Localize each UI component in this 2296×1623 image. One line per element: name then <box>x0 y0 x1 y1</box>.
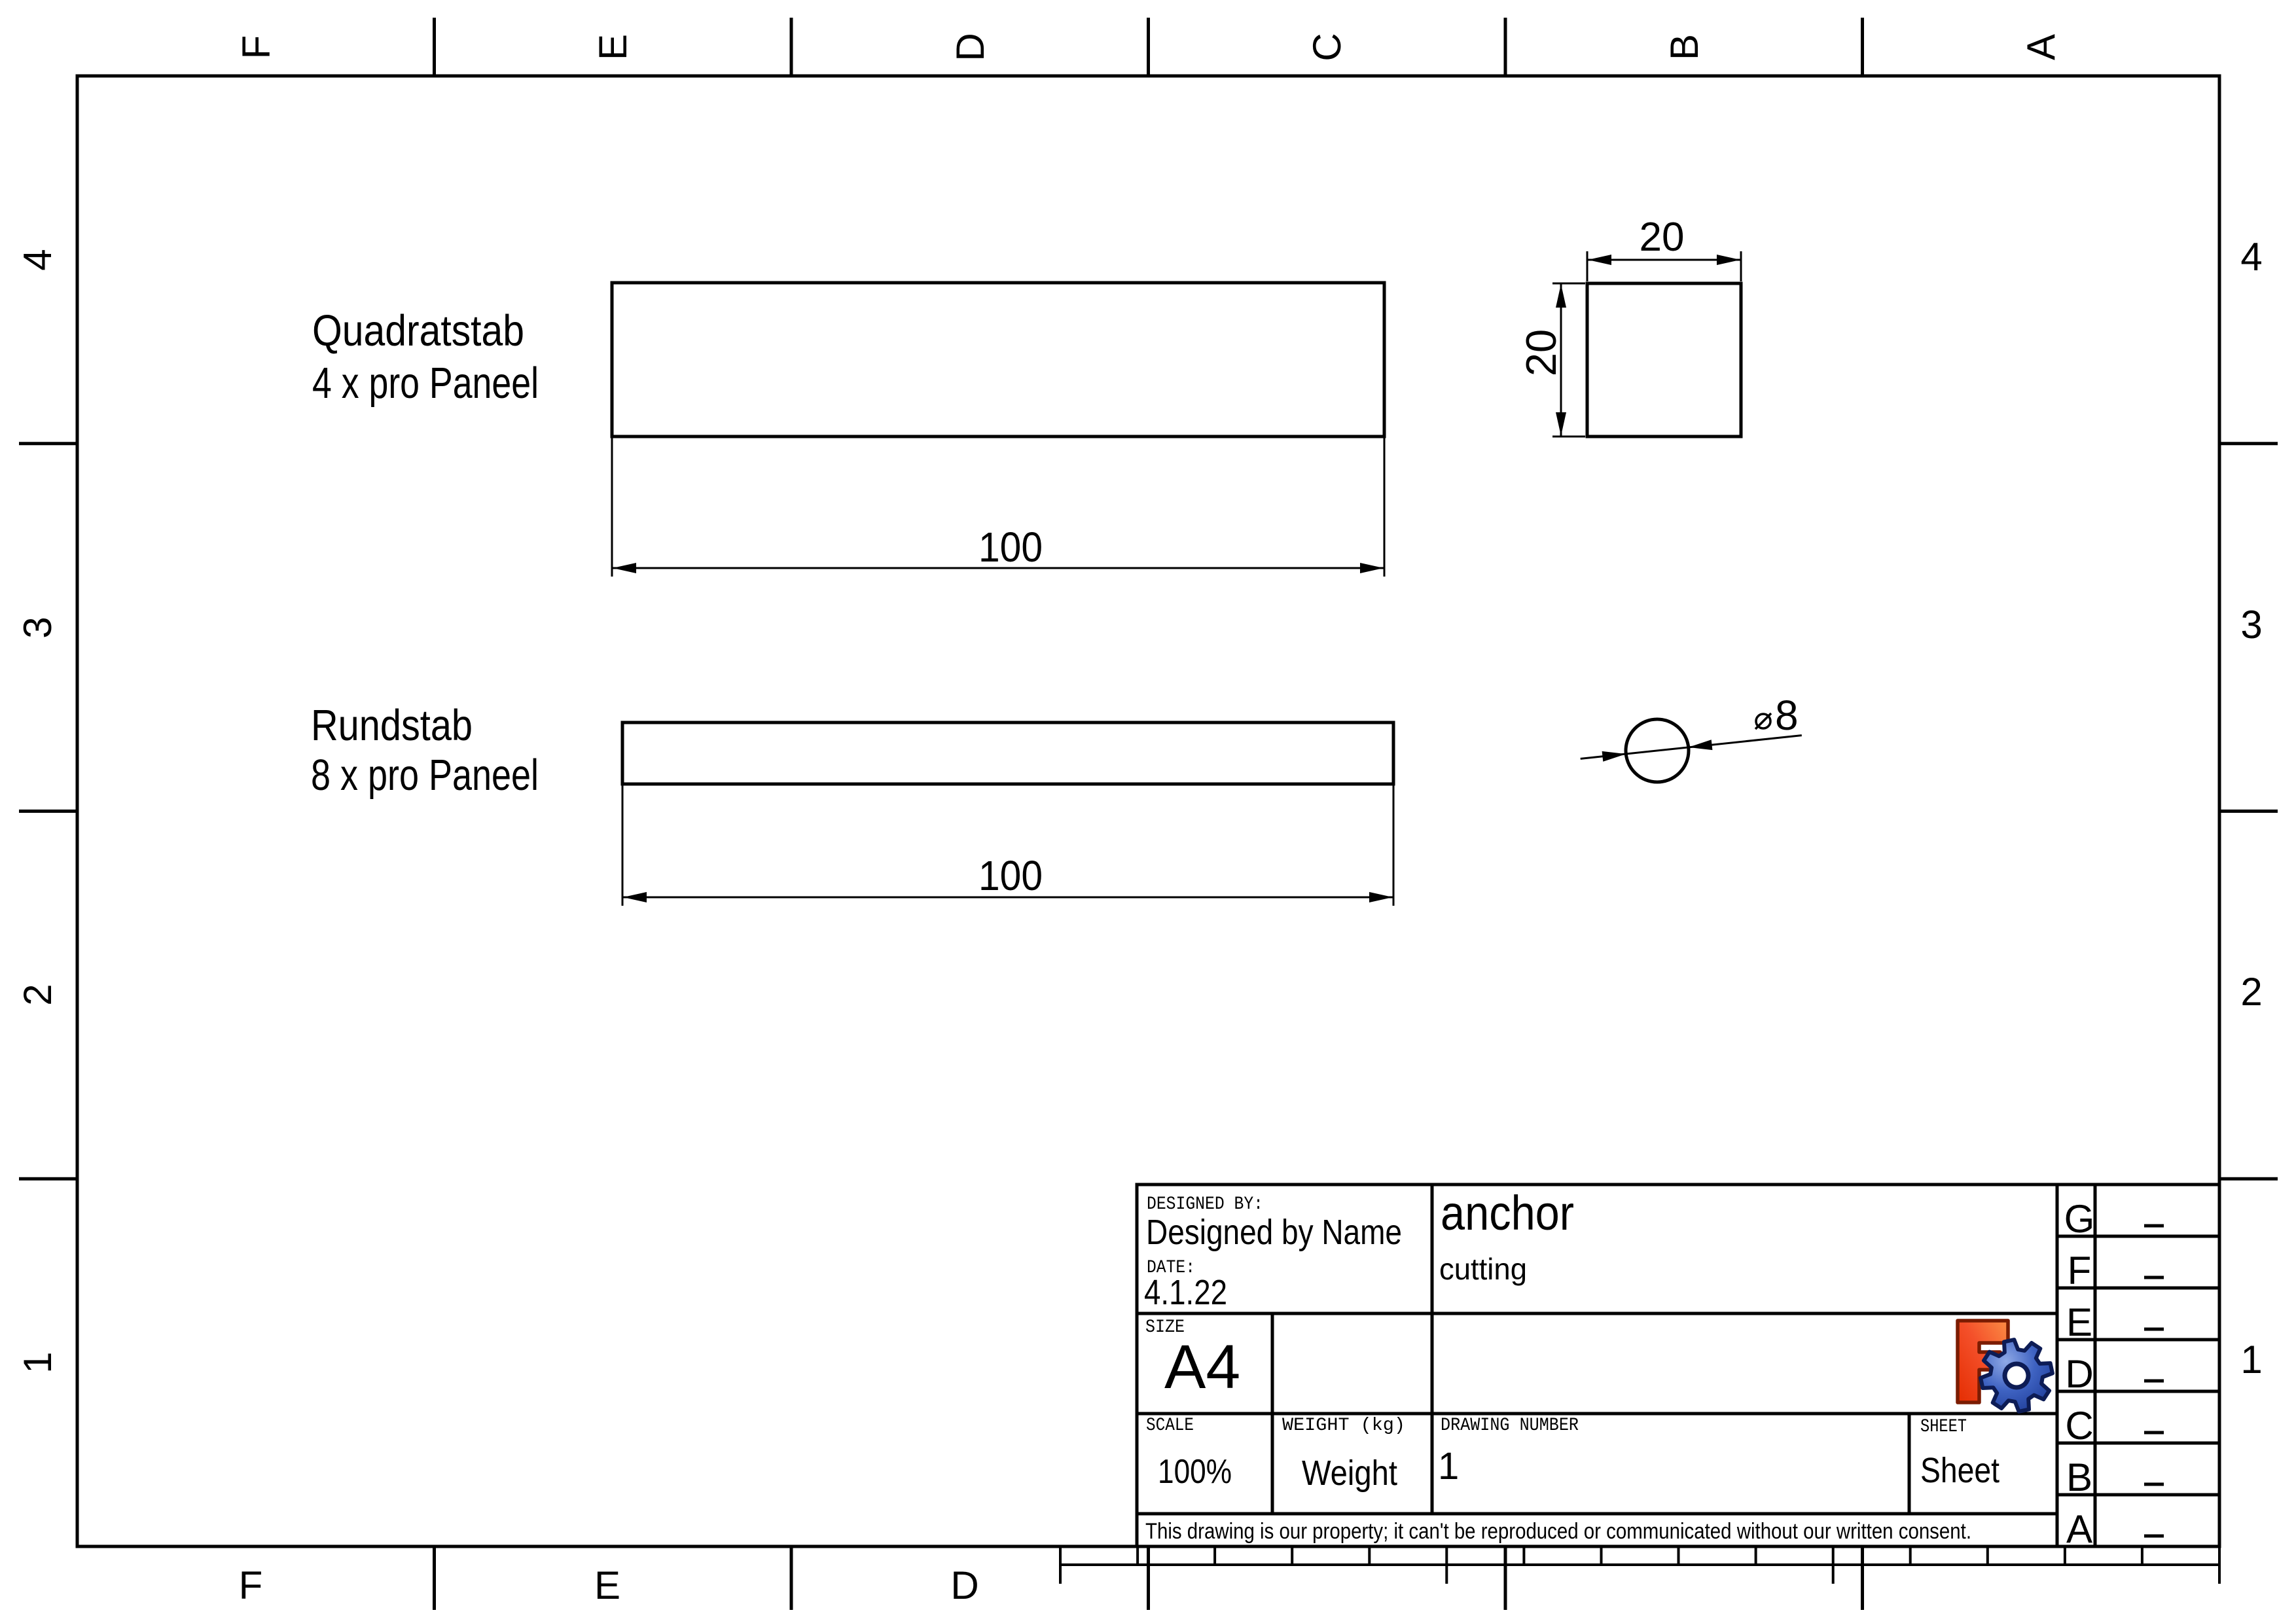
svg-text:G: G <box>2064 1197 2095 1241</box>
svg-text:B: B <box>1662 34 1706 60</box>
svg-text:Quadratstab: Quadratstab <box>312 306 524 355</box>
svg-text:4.1.22: 4.1.22 <box>1144 1273 1227 1312</box>
svg-text:A4: A4 <box>1164 1332 1240 1402</box>
svg-text:3: 3 <box>2240 603 2262 647</box>
svg-text:Weight: Weight <box>1302 1454 1397 1493</box>
svg-text:100%: 100% <box>1158 1453 1232 1491</box>
svg-text:F: F <box>239 1563 263 1607</box>
svg-text:cutting: cutting <box>1439 1252 1527 1286</box>
svg-text:4: 4 <box>16 249 60 270</box>
svg-text:D: D <box>2065 1352 2093 1396</box>
svg-text:WEIGHT (kg): WEIGHT (kg) <box>1282 1416 1405 1436</box>
svg-text:C: C <box>2065 1404 2093 1448</box>
svg-text:4: 4 <box>2240 235 2262 279</box>
svg-text:2: 2 <box>2240 970 2262 1014</box>
svg-text:8 x pro Paneel: 8 x pro Paneel <box>311 751 539 800</box>
svg-text:C: C <box>1305 33 1349 61</box>
svg-text:2: 2 <box>16 984 60 1005</box>
svg-text:1: 1 <box>2240 1338 2262 1382</box>
svg-text:4 x pro Paneel: 4 x pro Paneel <box>312 359 539 408</box>
svg-text:100: 100 <box>978 852 1043 899</box>
svg-text:Rundstab: Rundstab <box>311 701 473 750</box>
svg-text:20: 20 <box>1517 329 1565 376</box>
svg-text:E: E <box>591 34 635 60</box>
svg-text:A: A <box>2019 34 2063 60</box>
svg-text:D: D <box>950 1563 978 1607</box>
svg-text:E: E <box>594 1563 620 1607</box>
svg-text:B: B <box>2066 1455 2092 1499</box>
svg-text:Designed by Name: Designed by Name <box>1146 1213 1402 1252</box>
svg-text:Sheet: Sheet <box>1920 1451 2000 1490</box>
svg-text:1: 1 <box>1438 1445 1459 1488</box>
svg-text:8: 8 <box>1775 692 1799 739</box>
svg-text:3: 3 <box>16 616 60 638</box>
svg-text:DRAWING NUMBER: DRAWING NUMBER <box>1441 1416 1579 1436</box>
svg-text:E: E <box>2066 1300 2092 1344</box>
svg-text:SCALE: SCALE <box>1146 1416 1194 1436</box>
svg-text:A: A <box>2066 1507 2092 1551</box>
svg-text:20: 20 <box>1640 215 1685 260</box>
svg-text:F: F <box>234 35 278 60</box>
svg-text:F: F <box>2068 1249 2092 1293</box>
svg-text:This drawing is our property;: This drawing is our property; it can't b… <box>1145 1519 1971 1544</box>
svg-text:1: 1 <box>16 1351 60 1373</box>
svg-text:DESIGNED BY:: DESIGNED BY: <box>1147 1194 1263 1215</box>
svg-text:SHEET: SHEET <box>1920 1417 1967 1437</box>
svg-text:anchor: anchor <box>1441 1186 1574 1240</box>
svg-text:D: D <box>948 33 992 61</box>
svg-text:100: 100 <box>978 524 1043 571</box>
